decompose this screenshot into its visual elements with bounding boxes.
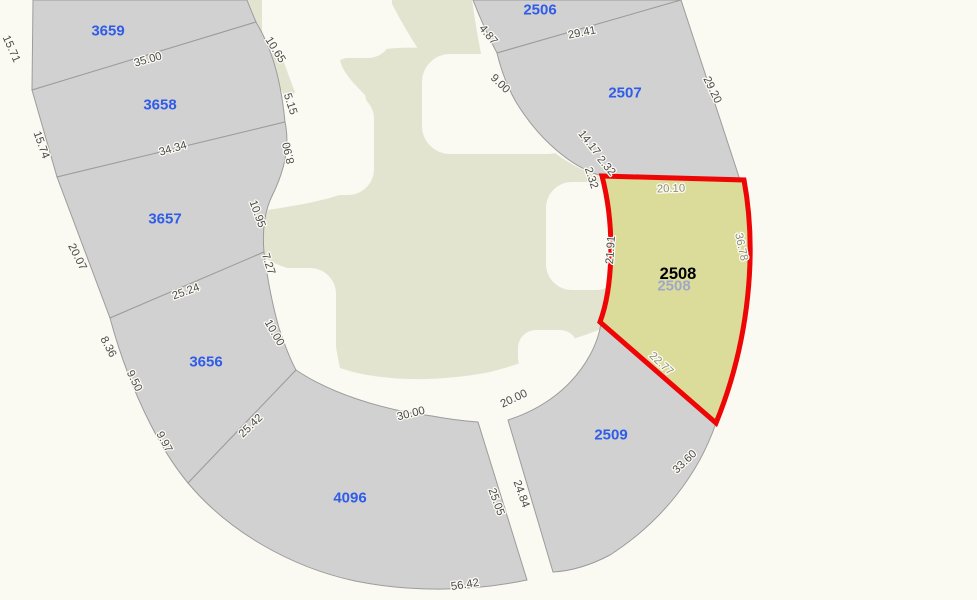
parcel-label-2507: 2507 [608, 85, 641, 102]
dimension-label: 20.10 [657, 183, 686, 196]
parcel-label-3657: 3657 [148, 211, 181, 228]
parcel-label-3658: 3658 [143, 97, 176, 114]
pavement-pocket [286, 93, 374, 195]
parcel-label-4096: 4096 [333, 490, 366, 507]
parcel-label-2506: 2506 [523, 2, 556, 19]
pavement-pocket [518, 330, 578, 376]
dimension-label: 21.91 [604, 235, 618, 264]
parcel-label-3656: 3656 [189, 354, 222, 371]
parcel-label-3659: 3659 [91, 23, 124, 40]
parcel-map[interactable]: 15.7135.0015.7434.3420.0725.248.369.509.… [0, 0, 977, 600]
map-canvas[interactable]: 15.7135.0015.7434.3420.0725.248.369.509.… [0, 0, 977, 600]
highlighted-parcel-label: 2508 [660, 265, 697, 283]
parcel-label-2509: 2509 [594, 427, 627, 444]
